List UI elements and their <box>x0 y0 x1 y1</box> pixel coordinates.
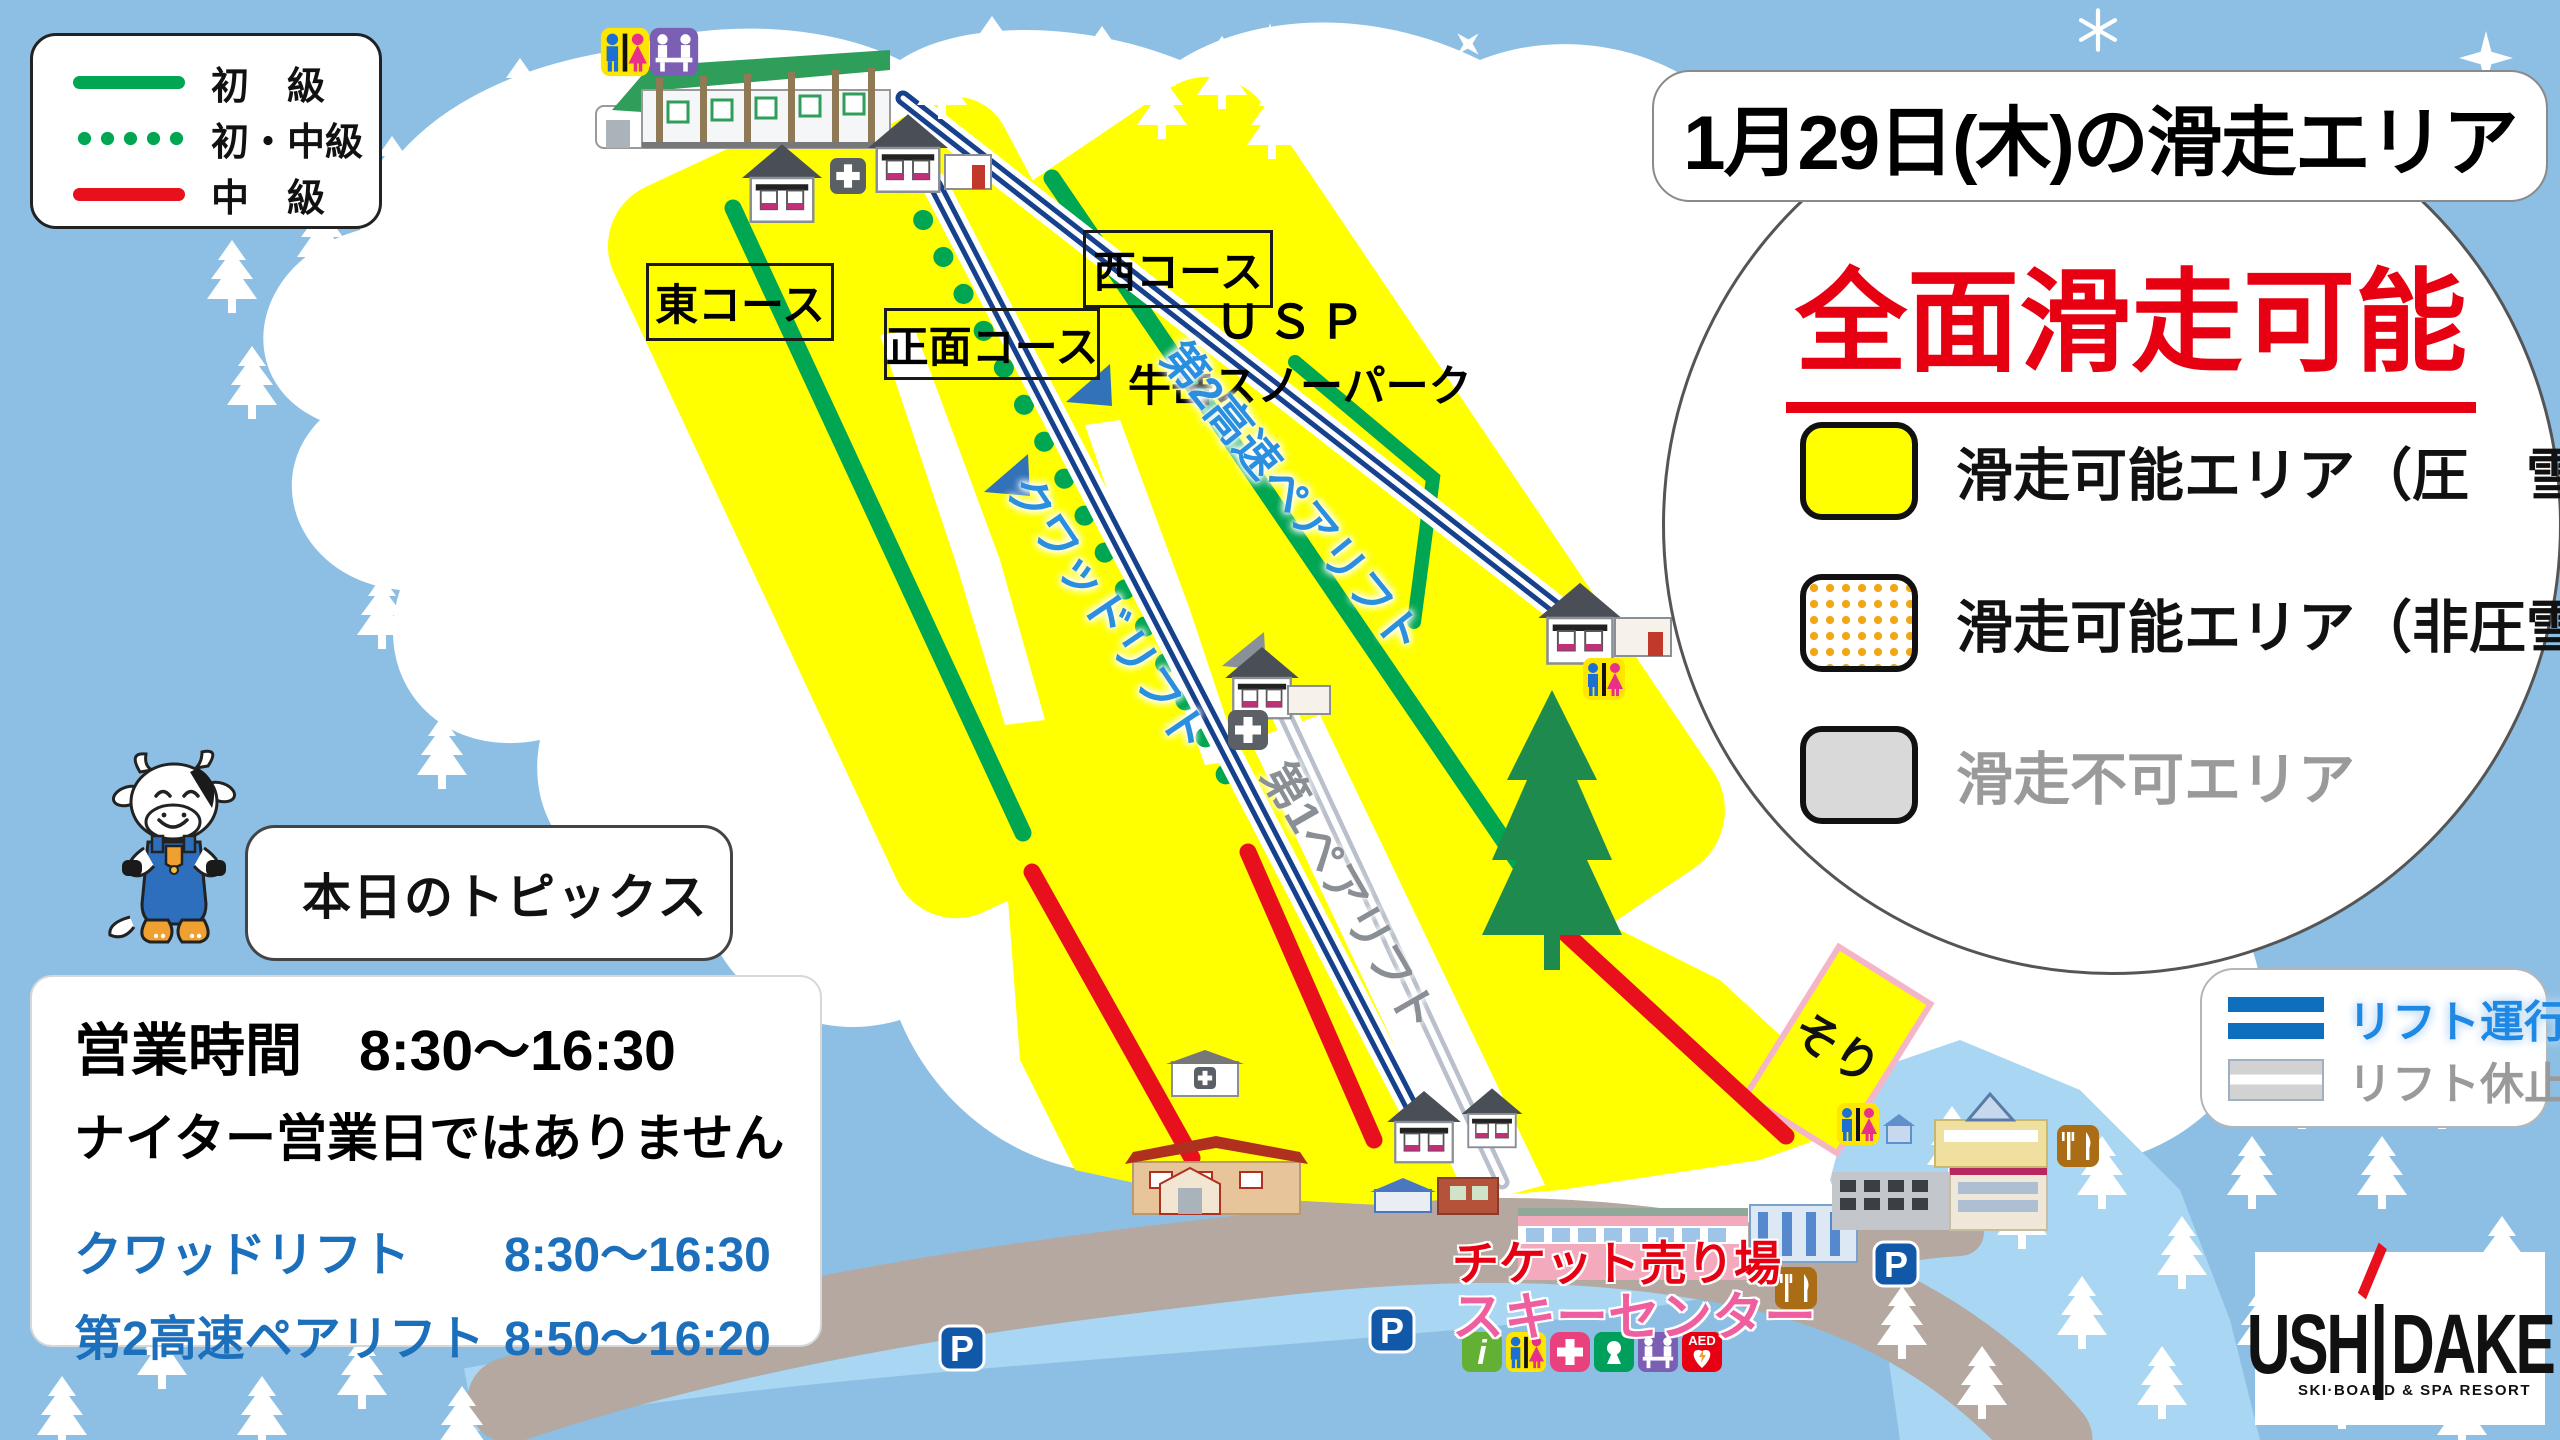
logo-ush: USH <box>2247 1302 2368 1386</box>
pair2-lift-time: 8:50～16:20 <box>504 1299 771 1369</box>
lift-running-row: リフト運行 <box>2228 992 2546 1044</box>
legend-row-groomed: 滑走可能エリア（圧 雪） <box>1800 422 2560 520</box>
groomed-label: 滑走可能エリア（圧 雪） <box>1956 430 2560 512</box>
legend-row-intermediate: 中 級 <box>73 166 379 222</box>
ski-resort-map: P P P i AED 全面滑走可能 滑走可能エリア（圧 雪） 滑走可能エリア（… <box>0 0 2560 1440</box>
closed-swatch <box>1800 726 1918 824</box>
quad-lift-time: 8:30～16:30 <box>504 1215 771 1285</box>
lift-stopped-label: リフト休止 <box>2348 1048 2560 1112</box>
logo-dake: DAKE <box>2391 1302 2554 1386</box>
pair2-lift-name: 第2高速ペアリフト <box>74 1299 504 1369</box>
legend-row-beginner: 初 級 <box>73 54 379 110</box>
topics-box: 本日のトピックス <box>245 825 733 961</box>
beginner-line-swatch <box>73 76 185 89</box>
business-hours: 営業時間 8:30～16:30 <box>74 1005 790 1087</box>
legend-row-beginner-intermediate: 初・中級 <box>73 110 379 166</box>
quad-lift-hours-row: クワッドリフト 8:30～16:30 <box>74 1215 790 1285</box>
groomed-swatch <box>1800 422 1918 520</box>
course-box-east: 東コース <box>646 263 834 341</box>
rest-area-icon <box>650 28 698 76</box>
logo-i-bar <box>2375 1304 2384 1400</box>
hours-panel: 営業時間 8:30～16:30 ナイター営業日ではありません クワッドリフト 8… <box>30 975 822 1347</box>
pair2-lift-hours-row: 第2高速ペアリフト 8:50～16:20 <box>74 1299 790 1369</box>
ticket-office-label: チケット売り場 <box>1452 1238 1816 1290</box>
logo-red-slash-icon <box>2358 1243 2387 1300</box>
lift-status-legend: リフト運行 リフト休止 <box>2200 968 2548 1128</box>
intermediate-line-swatch <box>73 188 185 201</box>
closed-label: 滑走不可エリア <box>1956 734 2355 816</box>
beginner-intermediate-dots-swatch <box>73 131 185 146</box>
restaurant-icon <box>2057 1125 2099 1167</box>
topics-label: 本日のトピックス <box>302 858 709 929</box>
lift-stopped-swatch <box>2228 1059 2324 1101</box>
ungroomed-label: 滑走可能エリア（非圧雪） <box>1956 582 2560 664</box>
resort-logo: USH DAKE SKI·BOARD & SPA RESORT <box>2255 1252 2545 1425</box>
toilet-icon <box>1583 658 1625 700</box>
course-east-label: 東コース <box>655 271 825 333</box>
lift-running-label: リフト運行 <box>2348 986 2560 1050</box>
ski-center-label: スキーセンター <box>1452 1290 1816 1347</box>
lift-running-swatch <box>2228 997 2324 1039</box>
toilet-icon <box>1837 1103 1879 1145</box>
legend-row-closed: 滑走不可エリア <box>1800 726 2560 824</box>
lift-stopped-row: リフト休止 <box>2228 1054 2546 1106</box>
beginner-intermediate-label: 初・中級 <box>211 111 363 166</box>
area-legend: 滑走可能エリア（圧 雪） 滑走可能エリア（非圧雪） 滑走不可エリア <box>1800 422 2560 878</box>
beginner-label: 初 級 <box>211 55 325 110</box>
toilet-icon <box>601 28 649 76</box>
status-headline: 全面滑走可能 <box>1786 232 2476 413</box>
date-title-box: 1月29日(木)の滑走エリア <box>1652 70 2548 202</box>
course-box-front: 正面コース <box>884 308 1100 380</box>
parking-letter: P <box>1884 1244 1908 1285</box>
intermediate-label: 中 級 <box>211 167 325 222</box>
night-notice: ナイター営業日ではありません <box>74 1097 790 1171</box>
parking-letter: P <box>1380 1310 1404 1351</box>
course-front-label: 正面コース <box>886 313 1099 375</box>
ungroomed-swatch <box>1800 574 1918 672</box>
parking-letter: P <box>950 1328 974 1369</box>
lift-hours-list: クワッドリフト 8:30～16:30 第2高速ペアリフト 8:50～16:20 <box>74 1215 790 1369</box>
quad-lift-name: クワッドリフト <box>74 1215 504 1285</box>
course-legend-card: 初 級 初・中級 中 級 <box>30 33 382 229</box>
date-title: 1月29日(木)の滑走エリア <box>1683 81 2516 191</box>
legend-row-ungroomed: 滑走可能エリア（非圧雪） <box>1800 574 2560 672</box>
logo-wordmark: USH DAKE <box>2247 1278 2554 1386</box>
ticket-office-block: チケット売り場 スキーセンター <box>1452 1238 1816 1347</box>
